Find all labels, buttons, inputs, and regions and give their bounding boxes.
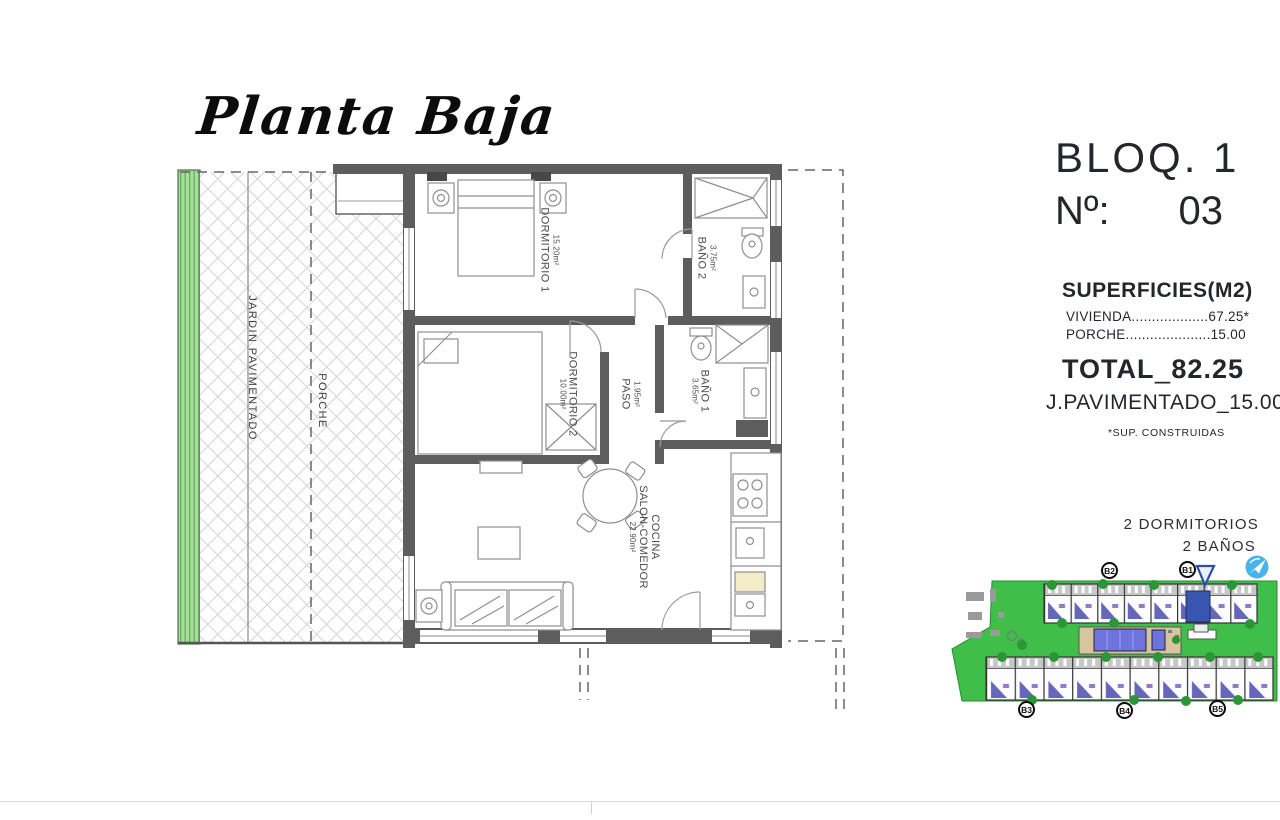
room-label-dormitorio-2: DORMITORIO 2 10.00m² (557, 351, 578, 436)
surfaces-footnote: *SUP. CONSTRUIDAS (1108, 427, 1225, 439)
room-label-bano-1: BAÑO 1 3.65m² (689, 370, 710, 413)
room-label-dormitorio-1: 15.20m² DORMITORIO 1 (538, 207, 559, 292)
pavimentado-separator: _ (1217, 391, 1229, 415)
plan-sheet: Planta Baja (0, 0, 1280, 820)
room-area: 1.95m² (632, 381, 641, 407)
room-area: 15.20m² (551, 235, 560, 266)
siteplan-block-marker-b3: B3 (1018, 701, 1035, 718)
siteplan-block-marker-b1: B1 (1179, 561, 1196, 578)
surface-row-porche: PORCHE.....................15.00 (1066, 327, 1246, 342)
room-area: 3.65m² (689, 378, 698, 404)
room-name: COCINA (648, 514, 660, 559)
label-jardin-pavimentado: JARDIN PAVIMENTADO (246, 295, 258, 441)
label-porche: PORCHE (316, 373, 328, 428)
siteplan-drawing (952, 556, 1277, 707)
bathrooms-count: 2 BAÑOS (1183, 538, 1256, 555)
room-name: DORMITORIO 2 (566, 351, 578, 436)
room-label-bano-2: 3.75m² BAÑO 2 (695, 237, 716, 280)
unit-number-value: 03 (1179, 189, 1224, 234)
unit-number-row: Nº: 03 (1055, 189, 1223, 234)
paved-garden-and-porch (178, 172, 412, 643)
sheet-border-tick (591, 801, 592, 814)
room-name: DORMITORIO 1 (538, 207, 550, 292)
garden-hedge (178, 170, 200, 644)
surface-row-vivienda: VIVIENDA...................67.25* (1066, 309, 1249, 324)
bedrooms-count: 2 DORMITORIOS (1124, 516, 1259, 533)
sheet-border-line (0, 801, 1280, 802)
room-area: 10.00m² (557, 379, 566, 410)
total-row: TOTAL _ 82.25 (1062, 354, 1244, 385)
porch-closet (336, 168, 408, 214)
total-separator: _ (1155, 354, 1171, 385)
total-label: TOTAL (1062, 354, 1155, 385)
pavimentado-value: 15.00 (1229, 391, 1280, 415)
siteplan-block-marker-b4: B4 (1116, 702, 1133, 719)
unit-number-label: Nº: (1055, 189, 1110, 234)
room-name: SALON-COMEDOR (636, 485, 648, 589)
siteplan-block-marker-b5: B5 (1209, 700, 1226, 717)
location-icon (1246, 556, 1269, 579)
room-name: BAÑO 1 (698, 370, 710, 413)
pavimentado-row: J.PAVIMENTADO _ 15.00 (1046, 391, 1258, 415)
pavimentado-label: J.PAVIMENTADO (1046, 391, 1217, 415)
room-area: 22.90m² (627, 522, 636, 553)
room-area: 3.75m² (708, 245, 717, 271)
surfaces-title: SUPERFICIES(M2) (1062, 279, 1253, 303)
room-label-paso: 1.95m² PASO (619, 378, 640, 409)
block-title: BLOQ. 1 (1055, 134, 1239, 182)
room-name: BAÑO 2 (695, 237, 707, 280)
furniture-salon-cocina (416, 453, 781, 630)
room-label-cocina-salon-comedor: COCINA SALON-COMEDOR 22.90m² (627, 485, 661, 589)
siteplan-block-marker-b2: B2 (1101, 562, 1118, 579)
room-name: PASO (619, 378, 631, 409)
total-value: 82.25 (1171, 354, 1244, 385)
